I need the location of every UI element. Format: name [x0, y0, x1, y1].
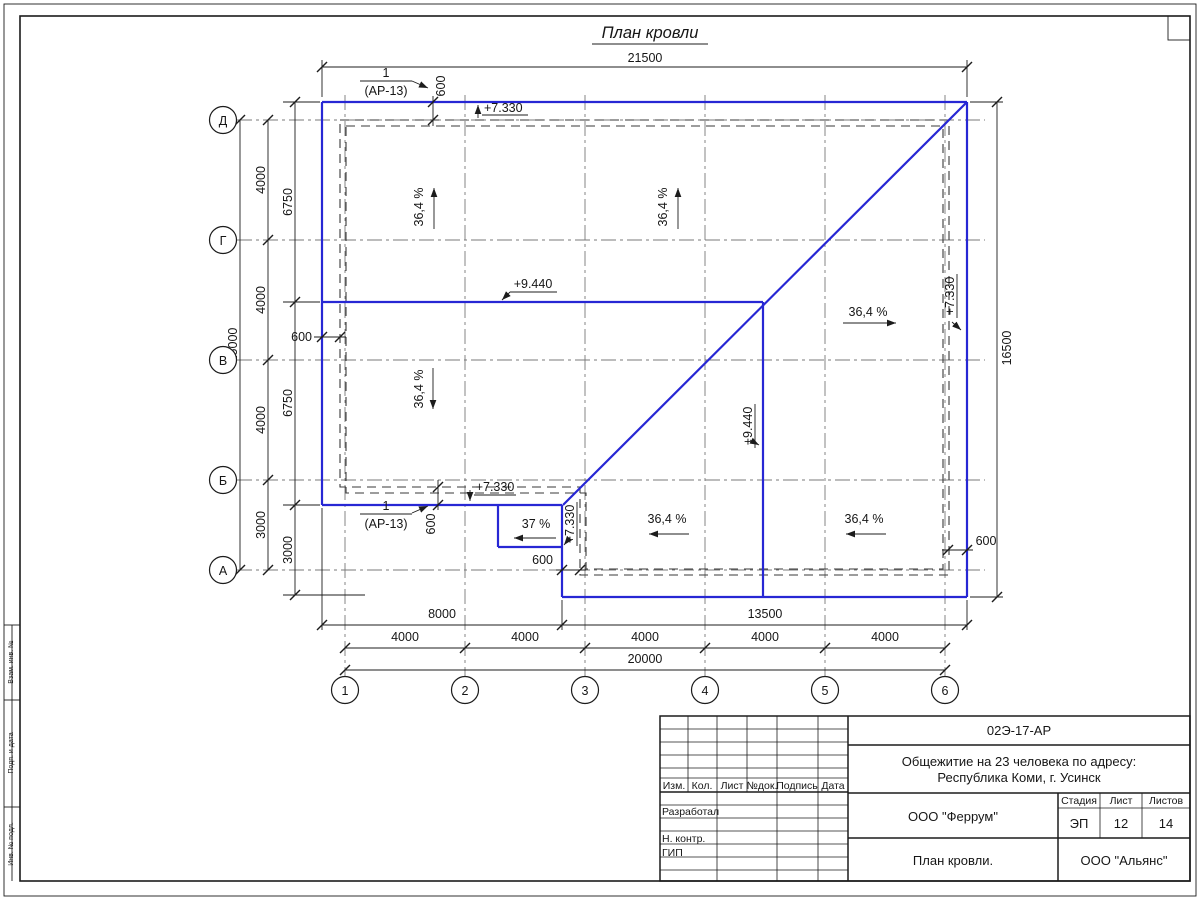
tb-col-data: Дата	[821, 780, 844, 792]
tb-col-doc: №док.	[747, 780, 778, 792]
page-title: План кровли	[602, 24, 699, 42]
tb-stage-value: ЭП	[1070, 816, 1089, 831]
dim-left-seg4: 3000	[254, 511, 268, 539]
axis-col-4: 4	[702, 684, 709, 698]
dimensions: 21500 1 (АР-13) 600 15000 4000 4000 4000…	[226, 51, 1014, 675]
tb-col-podpis: Подпись	[776, 780, 818, 792]
axis-col-5: 5	[822, 684, 829, 698]
tb-col-list: Лист	[721, 780, 744, 792]
drawing-title: План кровли	[592, 24, 708, 44]
tb-doc-code: 02Э-17-АР	[987, 723, 1051, 738]
axis-row-g: Г	[220, 234, 227, 248]
axis-row-b: Б	[219, 474, 227, 488]
axis-col-2: 2	[462, 684, 469, 698]
axis-col-6: 6	[942, 684, 949, 698]
tb-sheets-label: Листов	[1149, 795, 1184, 807]
mark-right-eave: +7.330	[943, 277, 957, 316]
wall-outline	[340, 120, 949, 575]
dim-right-total: 16500	[1000, 331, 1014, 366]
tb-col-izm: Изм.	[663, 780, 686, 792]
axis-row-d: Д	[219, 114, 228, 128]
slope-n: 36,4 %	[656, 188, 670, 227]
frame-label-3: Инв. № подл.	[8, 822, 15, 866]
callout-top-num: 1	[383, 66, 390, 80]
dim-bottom-4000-1: 4000	[391, 630, 419, 644]
tb-object-line2: Республика Коми, г. Усинск	[937, 770, 1100, 785]
slope-e: 36,4 %	[849, 305, 888, 319]
axis-col-3: 3	[582, 684, 589, 698]
tb-role-nkontr: Н. контр.	[662, 833, 705, 845]
dim-off-left: 600	[291, 330, 312, 344]
dim-bottom-8000: 8000	[428, 607, 456, 621]
tb-col-kol: Кол.	[692, 780, 713, 792]
dim-off-bottom-right: 600	[976, 534, 997, 548]
slope-w: 36,4 %	[412, 370, 426, 409]
dim-left-inner3: 3000	[281, 536, 295, 564]
tb-sheet-name: План кровли.	[913, 853, 993, 868]
mark-ridge: +9.440	[514, 277, 553, 291]
dim-left-seg2: 4000	[254, 286, 268, 314]
mark-top-eave: +7.330	[484, 101, 523, 115]
roof-marks: +7.330 +9.440 +9.440 +7.330 +7.330 +7.33…	[412, 101, 961, 546]
dim-left-seg1: 4000	[254, 166, 268, 194]
callout-bottom-num: 1	[383, 499, 390, 513]
callout-top-ref: (АР-13)	[364, 84, 407, 98]
frame-label-2: Подп. и дата	[8, 732, 15, 773]
slope-nw: 36,4 %	[412, 188, 426, 227]
mark-bottom-left-eave: +7.330	[476, 480, 515, 494]
dim-left-seg3: 4000	[254, 406, 268, 434]
dim-left-inner2: 6750	[281, 389, 295, 417]
tb-sheets-total: 14	[1159, 816, 1173, 831]
axis-row-v: В	[219, 354, 227, 368]
slope-s2: 36,4 %	[845, 512, 884, 526]
callout-bottom-ref: (АР-13)	[364, 517, 407, 531]
frame-label-1: Взам. инв. №	[8, 640, 15, 683]
dim-off-bottom-mid: 600	[532, 553, 553, 567]
dim-bottom-4000-5: 4000	[871, 630, 899, 644]
dim-off-top: 600	[434, 76, 448, 97]
tb-object-line1: Общежитие на 23 человека по адресу:	[902, 754, 1136, 769]
dim-off-bottom-left: 600	[424, 514, 438, 535]
dim-top-total: 21500	[628, 51, 663, 65]
axis-grid	[237, 95, 985, 676]
dim-bottom-4000-2: 4000	[511, 630, 539, 644]
dim-bottom-4000-4: 4000	[751, 630, 779, 644]
axis-row-a: А	[219, 564, 228, 578]
tb-role-gip: ГИП	[662, 847, 683, 859]
dim-bottom-4000-3: 4000	[631, 630, 659, 644]
dim-bottom-13500: 13500	[748, 607, 783, 621]
axis-col-1: 1	[342, 684, 349, 698]
tb-sheet-label: Лист	[1110, 795, 1133, 807]
mark-ridge-v: +9.440	[741, 407, 755, 446]
tb-sheet-num: 12	[1114, 816, 1128, 831]
drawing-sheet: Взам. инв. № Подп. и дата Инв. № подл. П…	[0, 0, 1200, 900]
roof-plan-svg: Взам. инв. № Подп. и дата Инв. № подл. П…	[0, 0, 1200, 900]
slope-s1: 36,4 %	[648, 512, 687, 526]
tb-contractor: ООО "Альянс"	[1081, 853, 1168, 868]
slope-canopy: 37 %	[522, 517, 551, 531]
mark-canopy: +7.330	[563, 505, 577, 544]
tb-role-razrabotal: Разработал	[662, 806, 719, 818]
title-block: Изм. Кол. Лист №док. Подпись Дата Разраб…	[660, 716, 1190, 881]
tb-stage-label: Стадия	[1061, 795, 1097, 807]
dim-bottom-total: 20000	[628, 652, 663, 666]
dim-left-inner1: 6750	[281, 188, 295, 216]
tb-org: ООО "Феррум"	[908, 809, 998, 824]
